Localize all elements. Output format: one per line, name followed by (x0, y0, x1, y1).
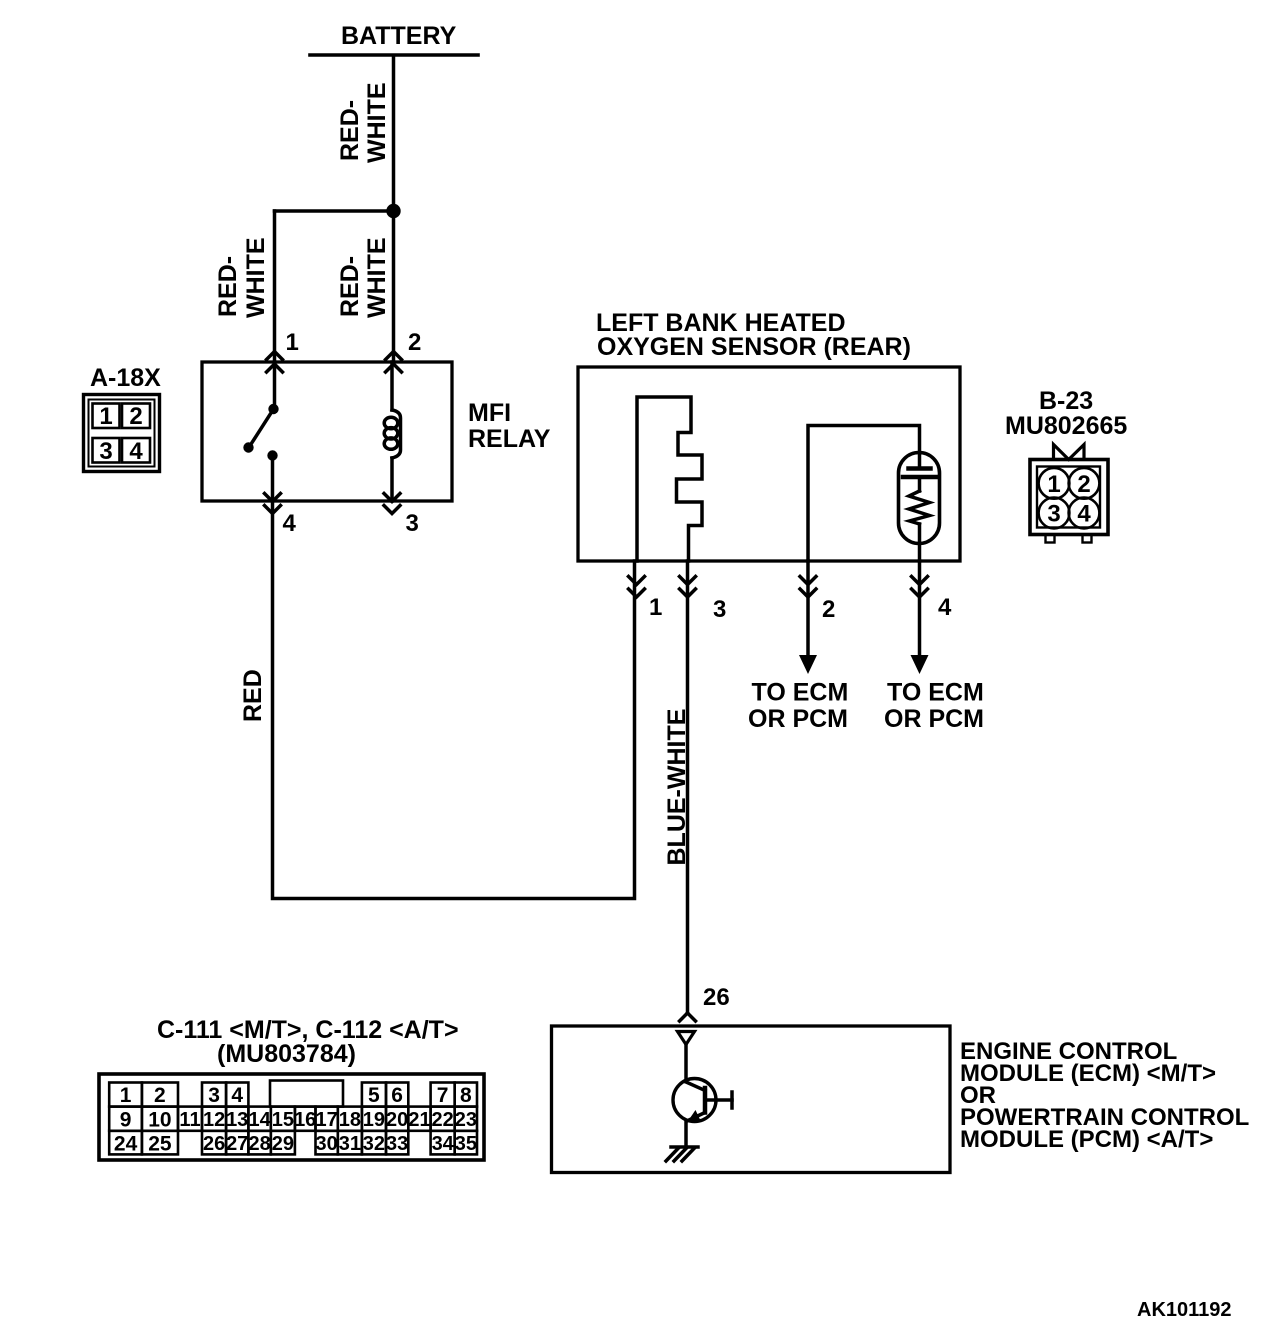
svg-text:7: 7 (437, 1084, 449, 1107)
svg-text:MFI: MFI (468, 399, 511, 427)
svg-text:4: 4 (231, 1084, 243, 1107)
svg-text:12: 12 (203, 1109, 225, 1131)
svg-text:1: 1 (286, 329, 299, 356)
svg-text:34: 34 (432, 1133, 455, 1155)
svg-text:6: 6 (391, 1084, 403, 1107)
svg-text:4: 4 (283, 510, 297, 537)
svg-text:26: 26 (203, 1133, 225, 1155)
svg-text:4: 4 (938, 594, 952, 621)
svg-text:24: 24 (114, 1132, 138, 1155)
svg-text:BLUE-WHITE: BLUE-WHITE (663, 709, 691, 866)
svg-text:16: 16 (294, 1109, 316, 1131)
svg-text:4: 4 (129, 438, 143, 465)
svg-text:2: 2 (129, 403, 142, 430)
svg-text:23: 23 (455, 1109, 477, 1131)
svg-text:17: 17 (315, 1109, 337, 1131)
svg-text:A-18X: A-18X (90, 364, 161, 392)
svg-text:22: 22 (431, 1109, 453, 1131)
svg-text:OR PCM: OR PCM (884, 705, 984, 733)
svg-text:5: 5 (368, 1084, 380, 1107)
svg-text:OR PCM: OR PCM (748, 705, 848, 733)
svg-text:28: 28 (248, 1133, 270, 1155)
svg-text:27: 27 (226, 1133, 248, 1155)
svg-text:RED: RED (239, 669, 267, 722)
svg-text:1: 1 (649, 594, 662, 621)
svg-text:WHITE: WHITE (242, 237, 270, 318)
svg-text:10: 10 (148, 1108, 171, 1131)
svg-text:WHITE: WHITE (363, 82, 391, 163)
svg-text:(MU803784): (MU803784) (217, 1040, 356, 1068)
svg-text:TO ECM: TO ECM (887, 679, 984, 707)
svg-text:9: 9 (120, 1108, 132, 1131)
svg-text:14: 14 (248, 1109, 271, 1131)
svg-text:30: 30 (315, 1133, 337, 1155)
svg-text:BATTERY: BATTERY (341, 22, 457, 50)
svg-text:18: 18 (339, 1109, 361, 1131)
svg-text:MODULE (ECM) <M/T>: MODULE (ECM) <M/T> (960, 1060, 1216, 1087)
svg-text:RELAY: RELAY (468, 425, 551, 453)
svg-text:26: 26 (703, 984, 730, 1011)
svg-text:29: 29 (272, 1133, 294, 1155)
svg-text:AK101192: AK101192 (1137, 1299, 1232, 1321)
svg-text:TO ECM: TO ECM (752, 679, 849, 707)
svg-text:32: 32 (363, 1133, 385, 1155)
svg-text:3: 3 (1047, 501, 1060, 528)
svg-text:1: 1 (1047, 471, 1060, 498)
svg-text:2: 2 (822, 596, 835, 623)
svg-text:19: 19 (363, 1109, 385, 1131)
svg-text:2: 2 (408, 329, 421, 356)
svg-text:8: 8 (460, 1084, 472, 1107)
svg-text:31: 31 (339, 1133, 361, 1155)
svg-text:3: 3 (208, 1084, 220, 1107)
svg-text:MODULE (PCM) <A/T>: MODULE (PCM) <A/T> (960, 1126, 1213, 1153)
svg-text:2: 2 (154, 1084, 166, 1107)
svg-text:33: 33 (386, 1133, 408, 1155)
svg-text:3: 3 (99, 438, 112, 465)
svg-text:21: 21 (408, 1109, 430, 1131)
svg-text:13: 13 (226, 1109, 248, 1131)
svg-text:15: 15 (272, 1109, 294, 1131)
svg-text:3: 3 (406, 510, 419, 537)
svg-text:B-23: B-23 (1039, 387, 1093, 415)
svg-text:1: 1 (120, 1084, 132, 1107)
svg-text:RED-: RED- (336, 256, 364, 317)
svg-text:WHITE: WHITE (363, 237, 391, 318)
svg-text:OXYGEN SENSOR (REAR): OXYGEN SENSOR (REAR) (597, 333, 911, 361)
svg-text:25: 25 (148, 1132, 172, 1155)
svg-text:4: 4 (1077, 501, 1091, 528)
svg-text:RED-: RED- (336, 100, 364, 161)
svg-text:20: 20 (386, 1109, 408, 1131)
svg-text:1: 1 (99, 403, 112, 430)
svg-text:2: 2 (1077, 471, 1090, 498)
svg-text:3: 3 (713, 596, 726, 623)
svg-text:11: 11 (179, 1109, 200, 1131)
svg-text:MU802665: MU802665 (1005, 412, 1127, 440)
svg-text:RED-: RED- (214, 256, 242, 317)
svg-text:35: 35 (455, 1133, 477, 1155)
